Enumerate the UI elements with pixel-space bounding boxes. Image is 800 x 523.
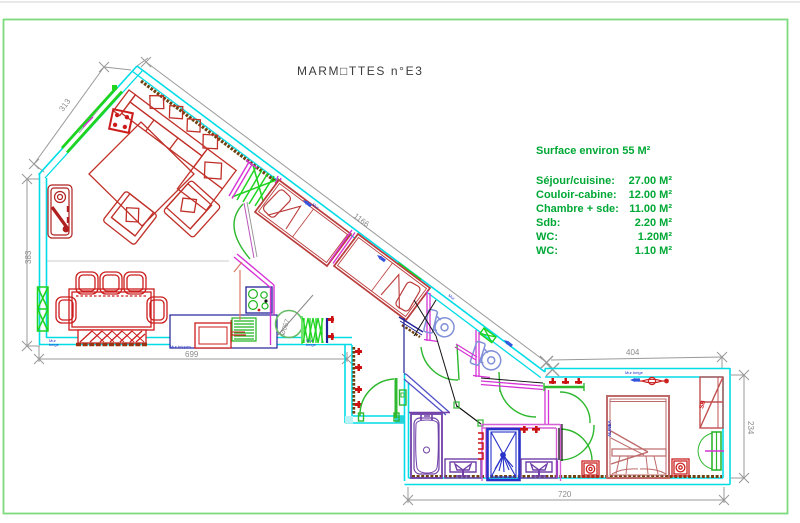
svg-text:Mur briques: Mur briques [170, 344, 191, 349]
svg-text:2.20 M²: 2.20 M² [635, 217, 673, 229]
svg-text:WC:: WC: [536, 245, 558, 257]
svg-text:WC:: WC: [536, 231, 558, 243]
svg-text:Chambre + sde:: Chambre + sde: [536, 203, 619, 215]
svg-text:beige: beige [306, 342, 317, 347]
svg-text:MARM□TTES n°E3: MARM□TTES n°E3 [297, 64, 423, 78]
svg-text:11.00 M²: 11.00 M² [629, 203, 672, 215]
svg-text:1.20M²: 1.20M² [638, 231, 673, 243]
svg-text:1.10 M²: 1.10 M² [635, 245, 673, 257]
svg-text:383: 383 [24, 250, 33, 264]
svg-text:234: 234 [746, 421, 755, 435]
svg-text:Couloir-cabine:: Couloir-cabine: [536, 189, 617, 201]
svg-text:12.00 M²: 12.00 M² [629, 189, 673, 201]
svg-text:Surface environ 55 M²: Surface environ 55 M² [536, 145, 651, 157]
svg-text:Séjour/cuisine:: Séjour/cuisine: [536, 175, 615, 187]
svg-text:27.00 M²: 27.00 M² [629, 175, 673, 187]
svg-text:699: 699 [185, 350, 199, 359]
svg-text:720: 720 [558, 490, 572, 499]
svg-text:ALINEA: ALINEA [607, 420, 612, 438]
svg-text:beige: beige [49, 342, 60, 347]
svg-text:404: 404 [626, 348, 640, 357]
svg-text:Mur beige: Mur beige [625, 370, 644, 375]
svg-text:Sdb:: Sdb: [536, 217, 560, 229]
